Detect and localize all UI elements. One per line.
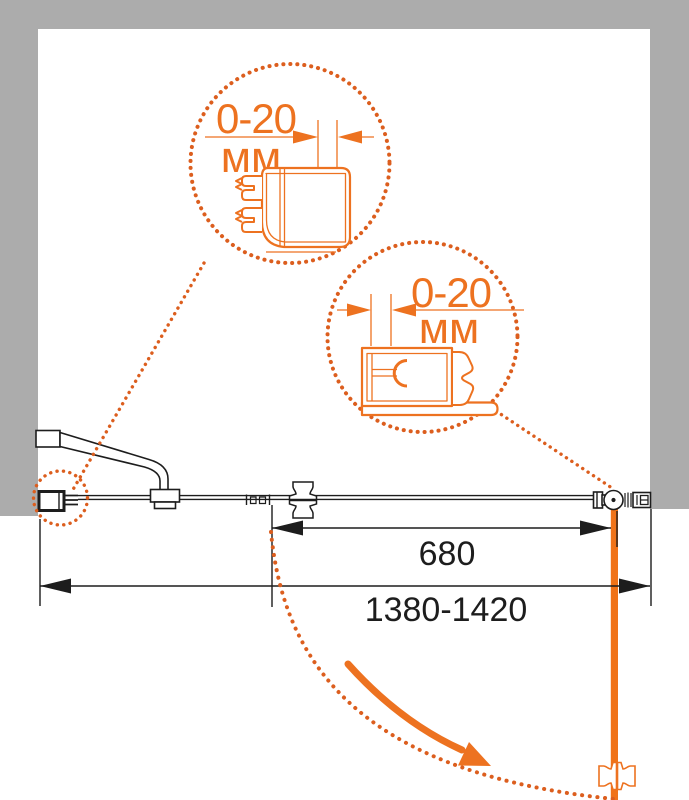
detail-2-unit: мм (419, 304, 480, 353)
open-door-handle (599, 763, 635, 790)
arrowhead-left (272, 521, 303, 536)
pivot-center-dot (611, 498, 615, 502)
detail-circle-2: 0-20 мм (328, 242, 525, 432)
drawing-canvas: 680 1380-1420 0-20 мм (0, 0, 689, 800)
profile-section-2 (362, 348, 498, 415)
profile-section-1 (236, 168, 350, 252)
wall-profile-left (39, 492, 78, 511)
dimension-overall-label: 1380-1420 (365, 591, 528, 629)
wall-top (0, 0, 689, 29)
arrowhead-right (580, 521, 611, 536)
dimension-680-label: 680 (419, 535, 476, 573)
arrowhead-left (40, 579, 71, 594)
dimension-1380-1420: 1380-1420 (40, 509, 651, 629)
wall-right (650, 28, 689, 509)
detail-circle-1: 0-20 мм (191, 64, 390, 263)
arrowhead-right (619, 579, 650, 594)
leader-line-detail-2 (496, 411, 612, 488)
door-open-position (611, 506, 618, 800)
door-handle (290, 482, 317, 518)
shower-door-technical-drawing: 680 1380-1420 0-20 мм (0, 0, 689, 800)
pivot-hinge (594, 491, 651, 510)
wall-left (0, 28, 38, 516)
